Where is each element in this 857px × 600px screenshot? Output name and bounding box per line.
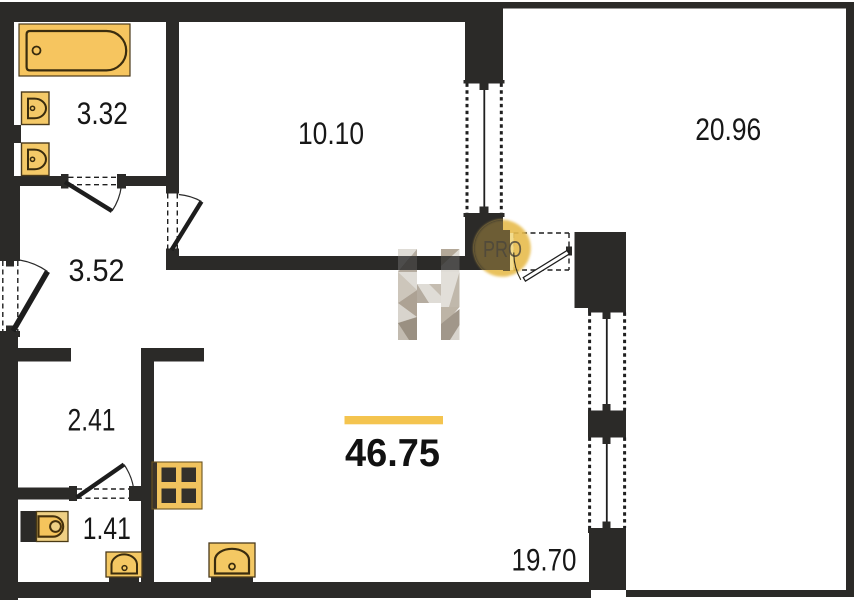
svg-text:19.70: 19.70 (512, 542, 577, 578)
svg-text:3.52: 3.52 (69, 252, 125, 288)
svg-text:10.10: 10.10 (298, 115, 364, 151)
svg-text:1.41: 1.41 (83, 510, 131, 546)
svg-text:20.96: 20.96 (695, 111, 761, 147)
svg-text:2.41: 2.41 (68, 402, 116, 438)
svg-text:PRO: PRO (483, 236, 522, 262)
svg-text:3.32: 3.32 (77, 95, 128, 131)
svg-text:46.75: 46.75 (345, 432, 440, 475)
